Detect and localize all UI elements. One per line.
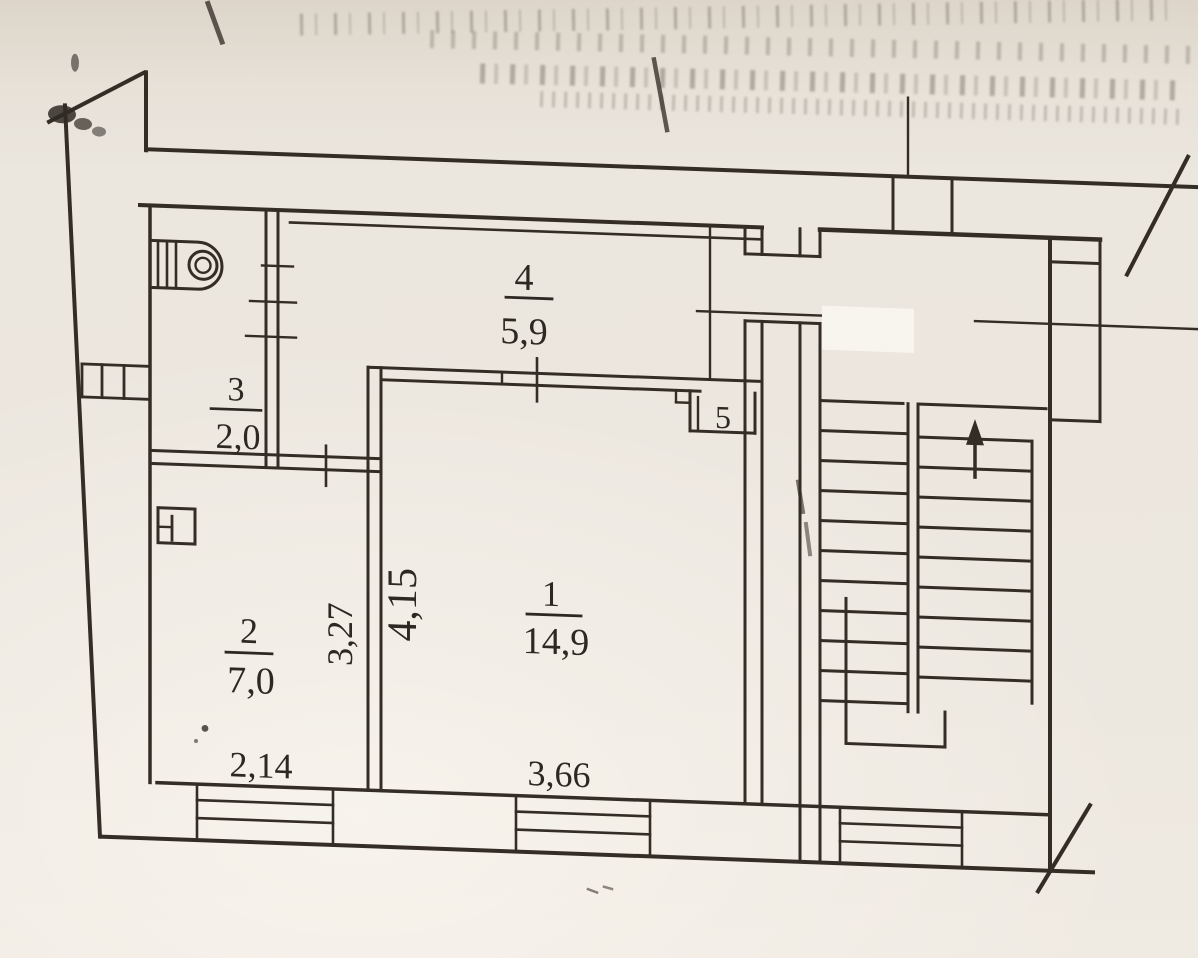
apartment-walls	[82, 203, 820, 807]
door-mark	[250, 301, 296, 303]
building-boundary	[49, 69, 1198, 897]
ink-dash	[604, 887, 612, 889]
doorway-jamb	[745, 321, 820, 324]
window-symbol	[516, 796, 650, 857]
scanned-floor-plan: 4 5,9 3 2,0 2 7,0 1 14,9 5 2,14 3,66	[0, 0, 1198, 958]
ink-dash	[806, 524, 810, 554]
room4-number: 4	[515, 257, 534, 300]
doorway-jamb	[745, 254, 820, 257]
adjacent-structure	[1050, 238, 1100, 422]
fraction-bar	[226, 652, 272, 654]
wall-break-mark	[1038, 803, 1090, 893]
room1-number: 1	[542, 574, 560, 615]
correction-patch	[822, 306, 914, 353]
stairwell-top-wall	[820, 230, 1100, 240]
room3-number: 3	[228, 371, 245, 409]
room3-area: 2,0	[216, 416, 261, 458]
dimension-room1-depth: 4,15	[380, 567, 426, 642]
dimension-room1-width: 3,66	[528, 753, 591, 795]
room2-area: 7,0	[227, 659, 274, 703]
wall-break-mark	[1127, 155, 1188, 277]
door-mark	[246, 336, 296, 338]
ink-slash	[208, 3, 222, 42]
ink-dash	[588, 889, 597, 892]
dimension-room2-depth: 3,27	[320, 602, 360, 666]
stove-burner-icon	[150, 240, 222, 290]
dimension-room2-width: 2,14	[230, 744, 293, 786]
window-symbol	[840, 807, 962, 867]
bottom-outer-wall	[157, 783, 1050, 871]
floor-plan-drawing: 4 5,9 3 2,0 2 7,0 1 14,9 5 2,14 3,66	[0, 0, 1198, 958]
vent-shaft-icon	[158, 508, 195, 544]
stairwell	[800, 94, 1100, 873]
ink-slash	[654, 60, 667, 130]
axis-line	[697, 311, 1198, 329]
window-symbol	[197, 784, 333, 845]
fraction-bar	[527, 614, 581, 616]
room1-area: 14,9	[523, 620, 589, 664]
room4-area: 5,9	[500, 310, 547, 354]
door-mark	[262, 265, 293, 266]
room2-number: 2	[240, 611, 258, 652]
window-symbol	[82, 364, 150, 399]
scan-artifacts-strokes	[208, 3, 810, 900]
ink-speck	[194, 739, 198, 743]
stair-steps-left	[820, 431, 908, 704]
fraction-bar	[506, 297, 552, 299]
ink-speck	[202, 725, 209, 732]
fraction-bar	[211, 409, 261, 411]
room5-number: 5	[715, 399, 731, 436]
